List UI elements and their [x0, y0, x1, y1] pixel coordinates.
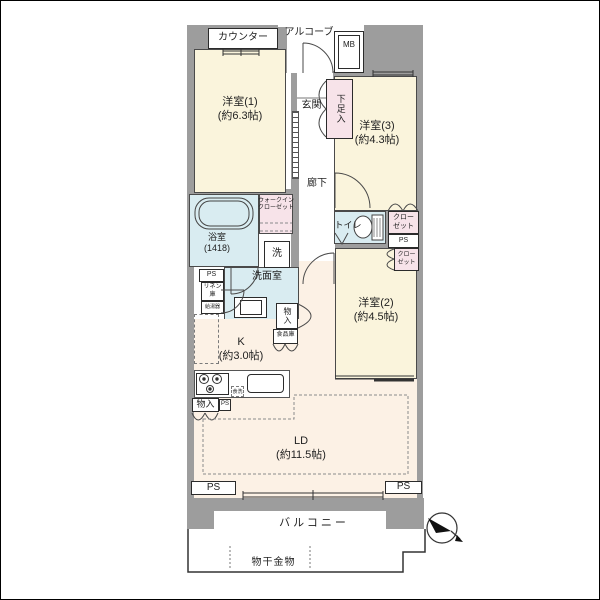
wic-label: ウォークインクローゼット	[259, 197, 293, 213]
storage-mid-label: 物入	[279, 305, 295, 327]
ps-bottom-left-label: PS	[191, 482, 236, 494]
bedroom1-sliding-door-hatch	[292, 111, 299, 179]
balcony-outline	[188, 529, 425, 572]
meter-box-label: MB	[334, 39, 364, 51]
front-door-arc	[303, 43, 333, 73]
western1-label: 洋室(1)(約6.3帖)	[196, 93, 284, 127]
counter-label: カウンター	[208, 30, 278, 47]
washroom-sink-basin	[240, 300, 262, 315]
storage-kitchen-label: 物入	[192, 399, 219, 411]
kitchen-label: K(約3.0帖)	[201, 333, 281, 367]
kitchen-sink	[247, 374, 284, 393]
laundry-machine-label: 洗	[264, 247, 290, 262]
ps-kitchen-label: PS	[219, 400, 231, 410]
closet-lower-label: クローゼット	[394, 250, 419, 269]
genkan-label: 玄関	[297, 99, 326, 113]
compass-icon	[427, 513, 463, 543]
bathroom-label: 浴室(1418)	[191, 227, 243, 259]
ps-right-label: PS	[388, 235, 419, 247]
wall-right	[417, 73, 423, 511]
stove-box	[196, 373, 229, 395]
linen-label: リネン庫	[201, 283, 224, 300]
corridor-label: 廊下	[301, 177, 333, 191]
closet-upper-label: クローゼット	[388, 212, 419, 233]
wall-bottom-right-block	[386, 498, 424, 529]
floor-plan: カウンター アルコーブ MB 玄関 下足入 洋室(1)(約6.3帖) 洋室(3)…	[0, 0, 600, 600]
wall-bottom-left-block	[187, 498, 214, 529]
toilet-label: トイレ	[335, 219, 361, 233]
ps-washroom-label: PS	[199, 270, 224, 281]
ld-label: LD(約11.5帖)	[256, 431, 346, 467]
balcony-label: バルコニー	[269, 516, 359, 532]
western3-label: 洋室(3)(約4.3帖)	[337, 117, 417, 151]
water-heater-label: 給湯器	[201, 302, 224, 313]
western2-label: 洋室(2)(約4.5帖)	[335, 293, 417, 329]
area-corridor	[299, 139, 335, 261]
room-ld-entry	[299, 261, 335, 379]
alcove-label: アルコーブ	[283, 27, 335, 40]
ps-bottom-right-label: PS	[385, 482, 422, 493]
washroom-label: 洗面室	[236, 270, 298, 284]
laundry-hardware-label: 物干金物	[246, 556, 301, 570]
dishwasher-label: 食洗	[231, 388, 244, 396]
wall-left	[187, 25, 194, 511]
wall-top-right-block	[364, 25, 423, 73]
